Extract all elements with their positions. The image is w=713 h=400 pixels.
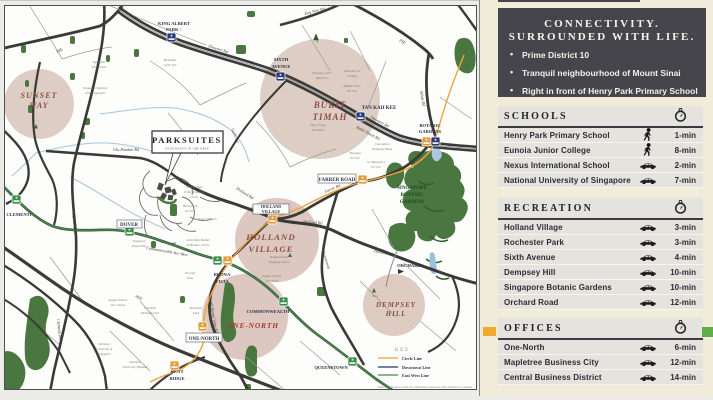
svg-text:SIXTH: SIXTH	[274, 57, 289, 62]
svg-text:Methodist: Methodist	[163, 58, 177, 62]
svg-text:Institution: Institution	[310, 128, 325, 132]
svg-text:PARK ↑: PARK ↑	[166, 27, 182, 32]
svg-text:Nanyang Girls': Nanyang Girls'	[311, 71, 332, 75]
svg-text:National: National	[128, 360, 140, 364]
svg-text:ORCHARD: ORCHARD	[397, 263, 421, 268]
svg-text:SUNSET: SUNSET	[21, 91, 58, 100]
svg-text:DOVER: DOVER	[120, 223, 138, 228]
svg-text:ONE-NORTH: ONE-NORTH	[227, 321, 279, 330]
svg-text:TIMAH: TIMAH	[312, 112, 347, 122]
svg-text:National Jnr: National Jnr	[343, 69, 361, 73]
svg-text:DEMPSEY: DEMPSEY	[375, 301, 416, 309]
svg-text:TAN KAH KEE: TAN KAH KEE	[362, 106, 397, 111]
svg-text:Shopping Plaza: Shopping Plaza	[372, 147, 393, 151]
svg-text:Circle Line: Circle Line	[402, 356, 422, 361]
svg-text:Methodist Sch: Methodist Sch	[140, 311, 160, 315]
svg-text:St. Margaret's: St. Margaret's	[367, 160, 386, 164]
svg-text:University Hospital: University Hospital	[122, 365, 147, 369]
svg-text:VISTA: VISTA	[215, 279, 229, 284]
svg-text:Vista: Vista	[187, 276, 194, 280]
svg-text:BUONA: BUONA	[214, 272, 231, 277]
svg-text:Singapore: Singapore	[133, 239, 147, 243]
svg-text:Pri Sch: Pri Sch	[370, 165, 381, 169]
svg-text:Park: Park	[192, 311, 200, 315]
svg-text:& Hawker Centre: & Hawker Centre	[187, 243, 210, 247]
svg-text:Nexus Int'l Sch: Nexus Int'l Sch	[196, 217, 217, 221]
svg-text:Pri Sch: Pri Sch	[346, 89, 357, 93]
svg-text:COMMONWEALTH: COMMONWEALTH	[247, 309, 290, 314]
svg-text:KING ALBERT: KING ALBERT	[158, 21, 190, 26]
svg-text:Henry Park: Henry Park	[182, 204, 199, 208]
svg-text:SINGAPORE: SINGAPORE	[397, 186, 427, 191]
svg-text:Ghim Moh Market: Ghim Moh Market	[186, 238, 210, 242]
svg-text:The Star: The Star	[185, 271, 197, 275]
svg-text:HILL: HILL	[385, 310, 407, 318]
svg-text:Singapore: Singapore	[98, 352, 112, 356]
svg-text:Sch (Int'l): Sch (Int'l)	[266, 279, 279, 283]
svg-text:Rochester: Rochester	[189, 306, 204, 310]
svg-text:BUKIT: BUKIT	[313, 100, 347, 110]
svg-text:GARDENS: GARDENS	[400, 200, 425, 205]
svg-text:BOTANIC: BOTANIC	[419, 123, 440, 128]
svg-text:KEY: KEY	[395, 348, 410, 353]
svg-text:CLEMENTI: CLEMENTI	[6, 212, 31, 217]
svg-text:YOUR HAVEN IN THE PARK: YOUR HAVEN IN THE PARK	[165, 148, 210, 151]
svg-text:Raffles Girls': Raffles Girls'	[343, 84, 361, 88]
svg-text:Shopping Centre: Shopping Centre	[268, 260, 290, 264]
svg-text:Anglo-Chinese: Anglo-Chinese	[108, 298, 129, 302]
svg-text:Map not drawn to scale. For il: Map not drawn to scale. For illustrative…	[378, 385, 473, 389]
svg-text:ONE-NORTH: ONE-NORTH	[189, 337, 220, 342]
svg-text:AVENUE: AVENUE	[272, 64, 291, 69]
svg-text:Polytechnic: Polytechnic	[90, 65, 107, 69]
svg-text:Coronation: Coronation	[375, 142, 390, 146]
svg-text:QUEENSTOWN: QUEENSTOWN	[314, 365, 348, 370]
svg-text:Ulu Pandan Rd: Ulu Pandan Rd	[113, 147, 140, 152]
svg-text:East West Line: East West Line	[402, 373, 429, 378]
svg-text:University of: University of	[96, 347, 114, 351]
svg-text:GARDENS: GARDENS	[419, 129, 442, 134]
svg-text:Centre: Centre	[190, 195, 199, 199]
svg-text:BOTANIC: BOTANIC	[401, 193, 424, 198]
svg-text:of Management: of Management	[85, 91, 105, 95]
svg-text:Singapore Institute: Singapore Institute	[83, 86, 108, 90]
svg-text:Ngee Ann: Ngee Ann	[92, 60, 106, 64]
svg-text:Cold Storage: Cold Storage	[186, 185, 203, 189]
svg-text:WAY: WAY	[29, 101, 48, 110]
svg-text:Downtown Line: Downtown Line	[402, 365, 431, 370]
svg-text:Polytechnic: Polytechnic	[130, 244, 147, 248]
svg-text:PARKSUITES: PARKSUITES	[152, 135, 222, 145]
svg-text:VILLAGE: VILLAGE	[248, 244, 293, 254]
svg-text:Pri Sch: Pri Sch	[184, 209, 195, 213]
svg-text:Hwa Chong: Hwa Chong	[309, 123, 326, 127]
svg-text:Nanyang: Nanyang	[348, 151, 361, 155]
svg-text:College: College	[347, 74, 357, 78]
svg-text:Park: Park	[371, 294, 379, 298]
svg-text:Anglo-Chinese: Anglo-Chinese	[262, 274, 283, 278]
svg-text:Fairfield: Fairfield	[143, 306, 156, 310]
svg-text:HOLLAND: HOLLAND	[245, 232, 296, 242]
svg-text:National: National	[97, 342, 109, 346]
svg-text:High Sch: High Sch	[315, 76, 328, 80]
svg-text:FARRER ROAD: FARRER ROAD	[319, 178, 356, 183]
svg-text:Jnr College: Jnr College	[111, 303, 127, 307]
svg-text:Jelita Shopping: Jelita Shopping	[184, 190, 204, 194]
svg-text:Girls' Sch: Girls' Sch	[164, 63, 177, 67]
svg-text:VILLAGE: VILLAGE	[262, 209, 281, 214]
svg-text:Holland Road: Holland Road	[269, 255, 288, 259]
svg-text:RIDGE: RIDGE	[169, 376, 184, 381]
svg-text:Pri Sch: Pri Sch	[349, 156, 360, 160]
